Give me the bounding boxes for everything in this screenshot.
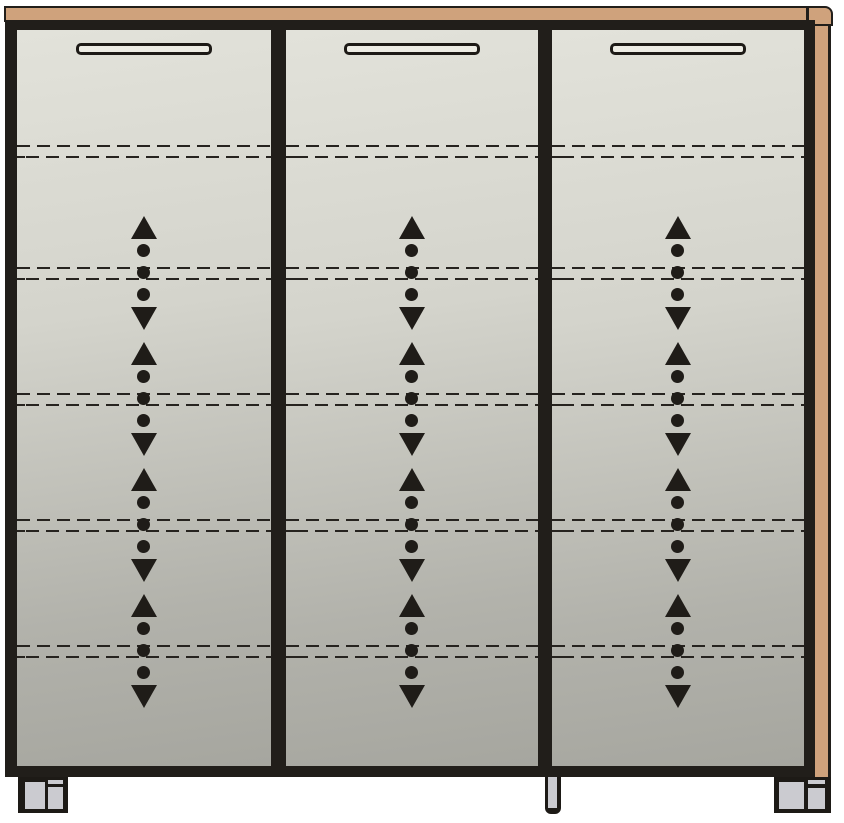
cabinet-diagram xyxy=(0,0,844,823)
pin-dot-icon xyxy=(137,288,150,301)
shelf-position-line xyxy=(17,145,271,147)
top-rail xyxy=(5,20,815,30)
door-left xyxy=(17,30,271,766)
pin-dot-icon xyxy=(137,414,150,427)
door-handle xyxy=(344,43,480,55)
shelf-adjust-indicator xyxy=(665,594,691,708)
shelf-adjust-indicator xyxy=(131,468,157,582)
pin-dot-icon xyxy=(671,622,684,635)
arrow-up-icon xyxy=(665,594,691,617)
shelf-adjust-indicator xyxy=(399,594,425,708)
arrow-up-icon xyxy=(399,468,425,491)
door-divider-2 xyxy=(538,30,552,777)
right-side-panel xyxy=(815,26,831,777)
shelf-adjust-indicator xyxy=(399,342,425,456)
pin-dot-icon xyxy=(137,518,150,531)
arrow-down-icon xyxy=(399,685,425,708)
pin-dot-icon xyxy=(137,266,150,279)
pin-dot-icon xyxy=(405,288,418,301)
arrow-up-icon xyxy=(665,342,691,365)
shelf-adjust-indicator xyxy=(131,216,157,330)
arrow-down-icon xyxy=(665,307,691,330)
shelf-adjust-indicator xyxy=(131,594,157,708)
shelf-adjust-indicator xyxy=(665,468,691,582)
pin-dot-icon xyxy=(671,540,684,553)
arrow-down-icon xyxy=(399,433,425,456)
pin-dot-icon xyxy=(137,244,150,257)
pin-dot-icon xyxy=(671,392,684,405)
leg-front-face xyxy=(25,782,45,809)
pin-dot-icon xyxy=(405,392,418,405)
shelf-position-line xyxy=(286,156,538,158)
arrow-down-icon xyxy=(131,433,157,456)
arrow-down-icon xyxy=(665,685,691,708)
arrow-up-icon xyxy=(665,216,691,239)
leg-right xyxy=(774,777,831,813)
pin-dot-icon xyxy=(671,266,684,279)
shelf-adjust-indicator xyxy=(131,342,157,456)
pin-dot-icon xyxy=(671,518,684,531)
arrow-down-icon xyxy=(131,559,157,582)
pin-dot-icon xyxy=(405,540,418,553)
pin-dot-icon xyxy=(137,644,150,657)
arrow-down-icon xyxy=(131,685,157,708)
pin-dot-icon xyxy=(405,644,418,657)
shelf-position-line xyxy=(552,156,804,158)
leg-center xyxy=(545,777,561,814)
arrow-up-icon xyxy=(131,216,157,239)
leg-front-face xyxy=(779,782,804,809)
pin-dot-icon xyxy=(671,644,684,657)
shelf-adjust-indicator xyxy=(665,216,691,330)
door-handle xyxy=(76,43,212,55)
arrow-up-icon xyxy=(131,594,157,617)
arrow-up-icon xyxy=(131,342,157,365)
door-divider-1 xyxy=(271,30,286,777)
arrow-up-icon xyxy=(399,342,425,365)
pin-dot-icon xyxy=(137,496,150,509)
shelf-adjust-indicator xyxy=(665,342,691,456)
arrow-up-icon xyxy=(399,594,425,617)
right-stile xyxy=(804,30,815,777)
pin-dot-icon xyxy=(405,496,418,509)
pin-dot-icon xyxy=(405,266,418,279)
leg-side-face xyxy=(48,787,63,809)
pin-dot-icon xyxy=(137,392,150,405)
pin-dot-icon xyxy=(405,518,418,531)
shelf-position-line xyxy=(286,145,538,147)
arrow-up-icon xyxy=(131,468,157,491)
pin-dot-icon xyxy=(137,666,150,679)
shelf-position-line xyxy=(552,145,804,147)
arrow-up-icon xyxy=(665,468,691,491)
pin-dot-icon xyxy=(405,666,418,679)
pin-dot-icon xyxy=(137,540,150,553)
bottom-rail xyxy=(5,766,815,777)
pin-dot-icon xyxy=(137,622,150,635)
pin-dot-icon xyxy=(671,414,684,427)
leg-side-face xyxy=(808,788,825,809)
arrow-down-icon xyxy=(399,559,425,582)
pin-dot-icon xyxy=(671,288,684,301)
pin-dot-icon xyxy=(671,370,684,383)
pin-dot-icon xyxy=(405,244,418,257)
arrow-down-icon xyxy=(399,307,425,330)
arrow-down-icon xyxy=(665,433,691,456)
arrow-down-icon xyxy=(131,307,157,330)
pin-dot-icon xyxy=(671,244,684,257)
shelf-adjust-indicator xyxy=(399,216,425,330)
leg-left xyxy=(18,777,68,813)
pin-dot-icon xyxy=(405,414,418,427)
pin-dot-icon xyxy=(405,370,418,383)
pin-dot-icon xyxy=(405,622,418,635)
left-stile xyxy=(5,20,17,777)
leg-front-face xyxy=(548,777,557,808)
arrow-up-icon xyxy=(399,216,425,239)
arrow-down-icon xyxy=(665,559,691,582)
pin-dot-icon xyxy=(671,666,684,679)
leg-top-sliver xyxy=(808,780,825,784)
shelf-adjust-indicator xyxy=(399,468,425,582)
shelf-position-line xyxy=(17,156,271,158)
leg-top-sliver xyxy=(48,780,63,784)
pin-dot-icon xyxy=(671,496,684,509)
door-handle xyxy=(610,43,746,55)
door-right xyxy=(552,30,804,766)
door-middle xyxy=(286,30,538,766)
pin-dot-icon xyxy=(137,370,150,383)
